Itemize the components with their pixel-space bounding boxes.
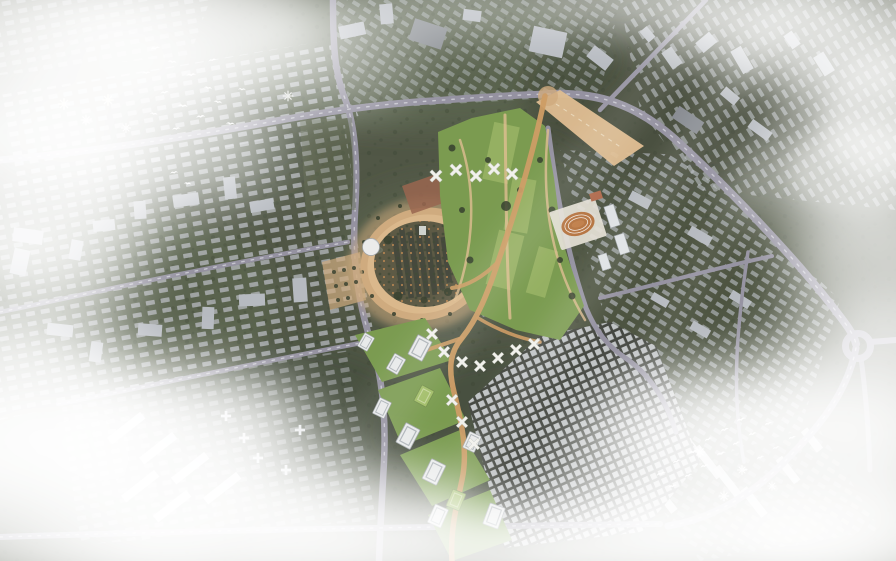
aerial-rendering [0,0,896,561]
aerial-rendering-canvas [0,0,896,561]
